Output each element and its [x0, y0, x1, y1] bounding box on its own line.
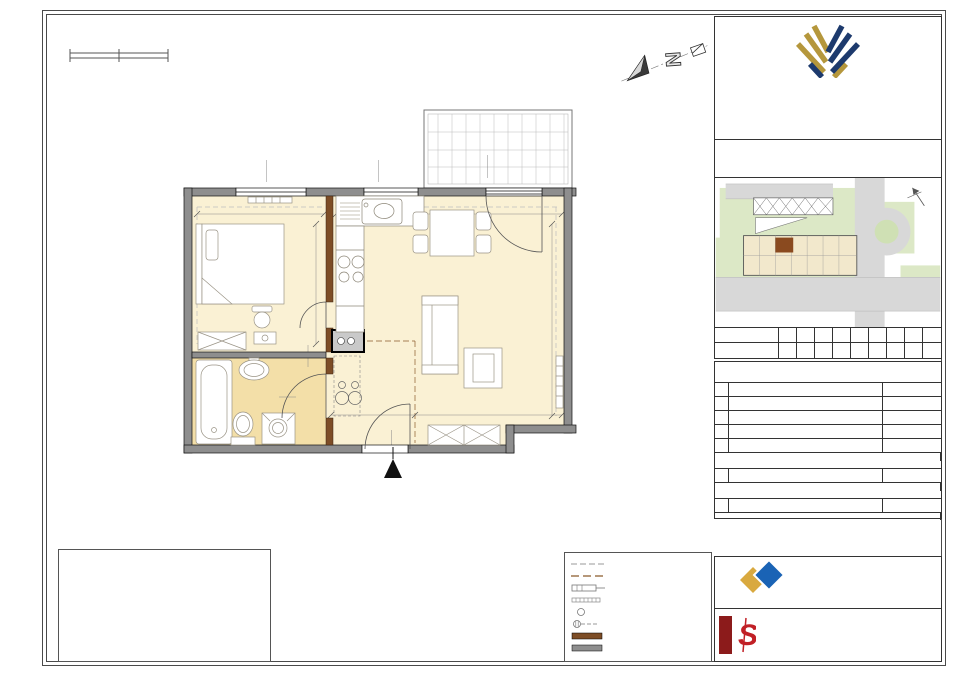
legend: [564, 552, 712, 662]
apartment-cell: [923, 343, 941, 358]
brand-emblem-icon: [786, 22, 870, 78]
floor-label: [715, 328, 779, 343]
architect-row: S: [715, 609, 941, 661]
table-row: [715, 439, 941, 453]
floor-col: [869, 328, 887, 343]
floor-col: [833, 328, 851, 343]
map-unit-highlight: [775, 238, 793, 253]
legend-row: [569, 570, 707, 582]
apartment-number-row: [715, 343, 941, 358]
floor-col: [851, 328, 869, 343]
table-row: [715, 411, 941, 425]
floor-col: [905, 328, 923, 343]
contact-block: S: [714, 556, 942, 662]
hall-wardrobe: [428, 425, 500, 445]
apartment-cell: [833, 343, 851, 358]
lowered-ceiling-symbol: [569, 559, 609, 569]
internal-area-summary-row: [715, 483, 941, 499]
balcony: [424, 110, 572, 188]
site-map-drawing: [715, 178, 941, 327]
exhaust-vent-symbol: [569, 619, 609, 629]
areas-header-row: [715, 383, 941, 397]
svg-text:N: N: [661, 51, 685, 68]
apartment-cell: [779, 343, 797, 358]
floor-header-row: [715, 328, 941, 343]
ladder-radiator-symbol: [569, 595, 609, 605]
floor-col: [797, 328, 815, 343]
col-name: [729, 383, 883, 396]
col-area: [883, 383, 941, 396]
floor-selector-table: [714, 327, 942, 359]
ceiling-height-row: [715, 513, 941, 527]
areas-table: [714, 382, 942, 519]
structural-wall-symbol: [569, 643, 609, 653]
scale-bar-lines: [70, 49, 168, 62]
area-outline-symbol: [569, 571, 609, 581]
floor-col: [887, 328, 905, 343]
floor-plan: [140, 95, 610, 500]
legend-row: [569, 558, 707, 570]
floor-col: [923, 328, 941, 343]
brand-block: [714, 16, 942, 140]
areas-table-title: [714, 361, 942, 383]
sewage-riser-symbol: [569, 607, 609, 617]
kalter-diamonds-icon: [732, 560, 792, 594]
map-subject-building: [744, 236, 857, 276]
legend-row: [569, 618, 707, 630]
architect-s-icon: S: [734, 615, 756, 655]
apartment-cell: [905, 343, 923, 358]
legend-row: [569, 582, 707, 594]
kalter-logo: [719, 559, 805, 606]
north-arrow-icon: N: [618, 26, 713, 92]
apartment-cell: [869, 343, 887, 358]
developer-row: [715, 557, 941, 609]
table-row: [715, 469, 941, 483]
apartment-cell: [815, 343, 833, 358]
map-roundabout-island: [875, 220, 899, 244]
table-row: [715, 397, 941, 411]
apartment-row-label: [715, 343, 779, 358]
apartment-cell: [797, 343, 815, 358]
usable-area-summary-row: [715, 453, 941, 469]
balcony-row: [715, 499, 941, 513]
table-row: [715, 425, 941, 439]
kalter-contact: [805, 559, 937, 606]
legend-row: [569, 594, 707, 606]
legend-row: [569, 606, 707, 618]
architect-logo-bar: [719, 616, 732, 654]
svg-text:S: S: [738, 619, 756, 652]
apartment-number: [887, 343, 905, 358]
architect-logo: S: [719, 611, 869, 659]
panel-radiator-symbol: [569, 583, 609, 593]
partition-wall-symbol: [569, 631, 609, 641]
col-nr: [715, 383, 729, 396]
architect-address: [869, 611, 937, 659]
building-info: [714, 139, 942, 178]
scale-bar: [62, 34, 186, 66]
legend-row: [569, 642, 707, 654]
site-map: [714, 177, 942, 328]
apartment-cell: [851, 343, 869, 358]
floor-col: [815, 328, 833, 343]
legend-row: [569, 630, 707, 642]
floor-col: [779, 328, 797, 343]
notes-box: [58, 549, 271, 662]
